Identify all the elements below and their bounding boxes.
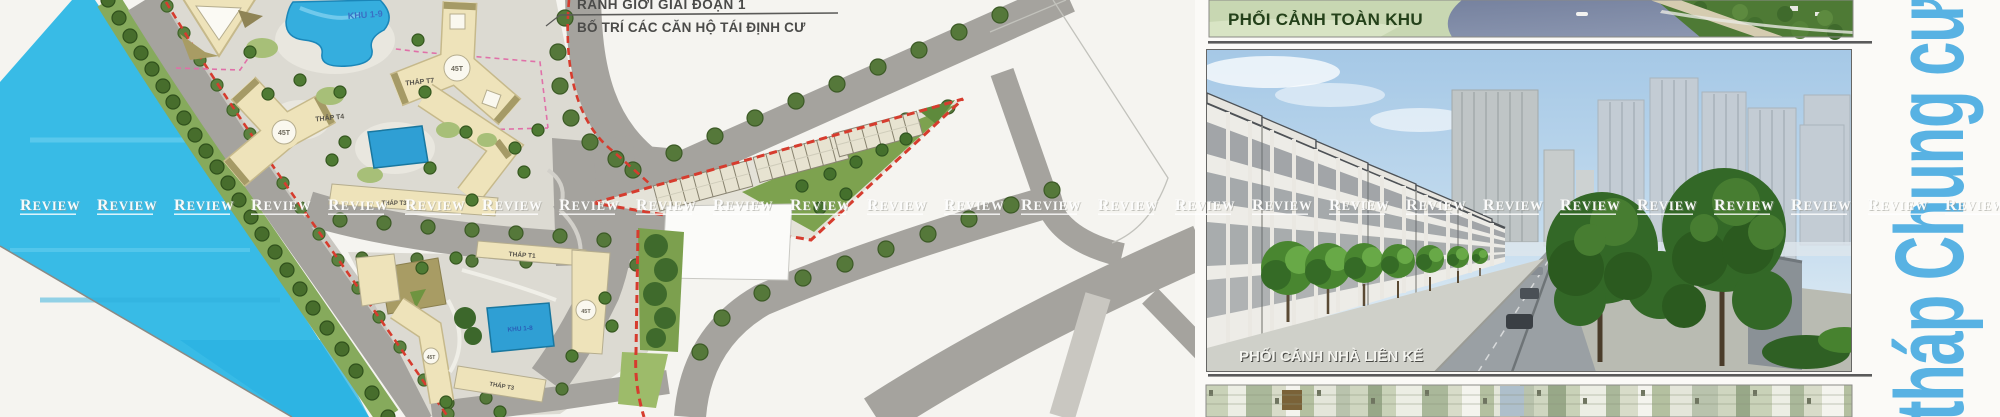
svg-text:45T: 45T	[581, 309, 591, 315]
svg-text:PHỐI CẢNH NHÀ LIÊN KẾ: PHỐI CẢNH NHÀ LIÊN KẾ	[1239, 347, 1423, 365]
svg-text:RANH GIỚI GIAI ĐOẠN 1: RANH GIỚI GIAI ĐOẠN 1	[577, 0, 746, 12]
svg-text:PHỐI CẢNH TOÀN KHU: PHỐI CẢNH TOÀN KHU	[1228, 9, 1423, 29]
svg-text:45T: 45T	[278, 130, 291, 137]
svg-text:BỐ TRÍ CÁC CĂN HỘ TÁI ĐỊNH CƯ: BỐ TRÍ CÁC CĂN HỘ TÁI ĐỊNH CƯ	[577, 20, 806, 35]
svg-text:45T: 45T	[427, 355, 436, 361]
svg-text:45T: 45T	[451, 66, 464, 73]
